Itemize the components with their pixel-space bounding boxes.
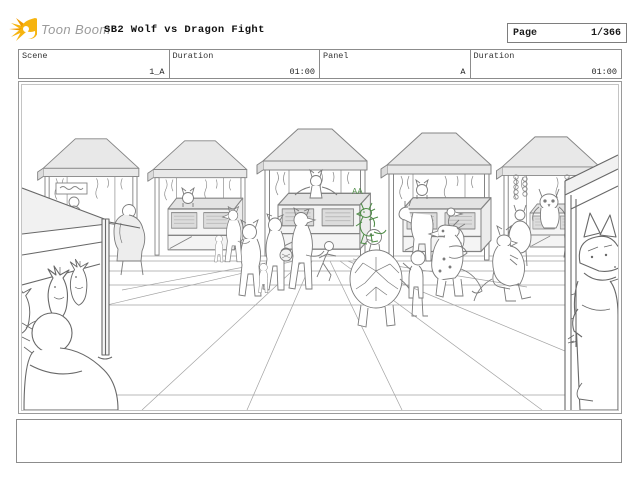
page-indicator: Page 1/366 bbox=[507, 23, 627, 43]
scene-cell: Scene 1_A bbox=[19, 50, 170, 78]
panel-cell: Panel A bbox=[320, 50, 471, 78]
toonboom-logo-icon bbox=[9, 16, 37, 43]
caption-box bbox=[16, 419, 622, 463]
panel-duration-value: 01:00 bbox=[591, 67, 617, 77]
panel-duration-cell: Duration 01:00 bbox=[471, 50, 622, 78]
scene-duration-label: Duration bbox=[173, 51, 214, 61]
storyboard-panel-inner: AA bbox=[21, 84, 619, 411]
storyboard-export-page: Toon Boom SB2 Wolf vs Dragon Fight Page … bbox=[0, 0, 640, 496]
storyboard-drawing: AA bbox=[22, 85, 618, 410]
storyboard-panel-frame: AA bbox=[18, 81, 622, 414]
panel-value: A bbox=[460, 67, 465, 77]
page-label: Page bbox=[513, 28, 537, 39]
scene-duration-value: 01:00 bbox=[289, 67, 315, 77]
scene-value: 1_A bbox=[149, 67, 164, 77]
dragon-foreground bbox=[565, 155, 618, 410]
logo-wordmark: Toon Boom bbox=[41, 22, 111, 37]
sitting-customer bbox=[114, 205, 145, 276]
page-number: 1/366 bbox=[591, 28, 621, 39]
project-title: SB2 Wolf vs Dragon Fight bbox=[104, 24, 265, 36]
panel-label: Panel bbox=[323, 51, 349, 61]
scene-label: Scene bbox=[22, 51, 48, 61]
svg-text:AA: AA bbox=[352, 187, 363, 196]
panel-duration-label: Duration bbox=[474, 51, 515, 61]
child-character bbox=[403, 251, 428, 317]
scene-duration-cell: Duration 01:00 bbox=[170, 50, 321, 78]
header: Toon Boom SB2 Wolf vs Dragon Fight Page … bbox=[0, 0, 640, 48]
panel-info-table: Scene 1_A Duration 01:00 Panel A Duratio… bbox=[18, 49, 622, 79]
fox-child bbox=[215, 236, 224, 263]
